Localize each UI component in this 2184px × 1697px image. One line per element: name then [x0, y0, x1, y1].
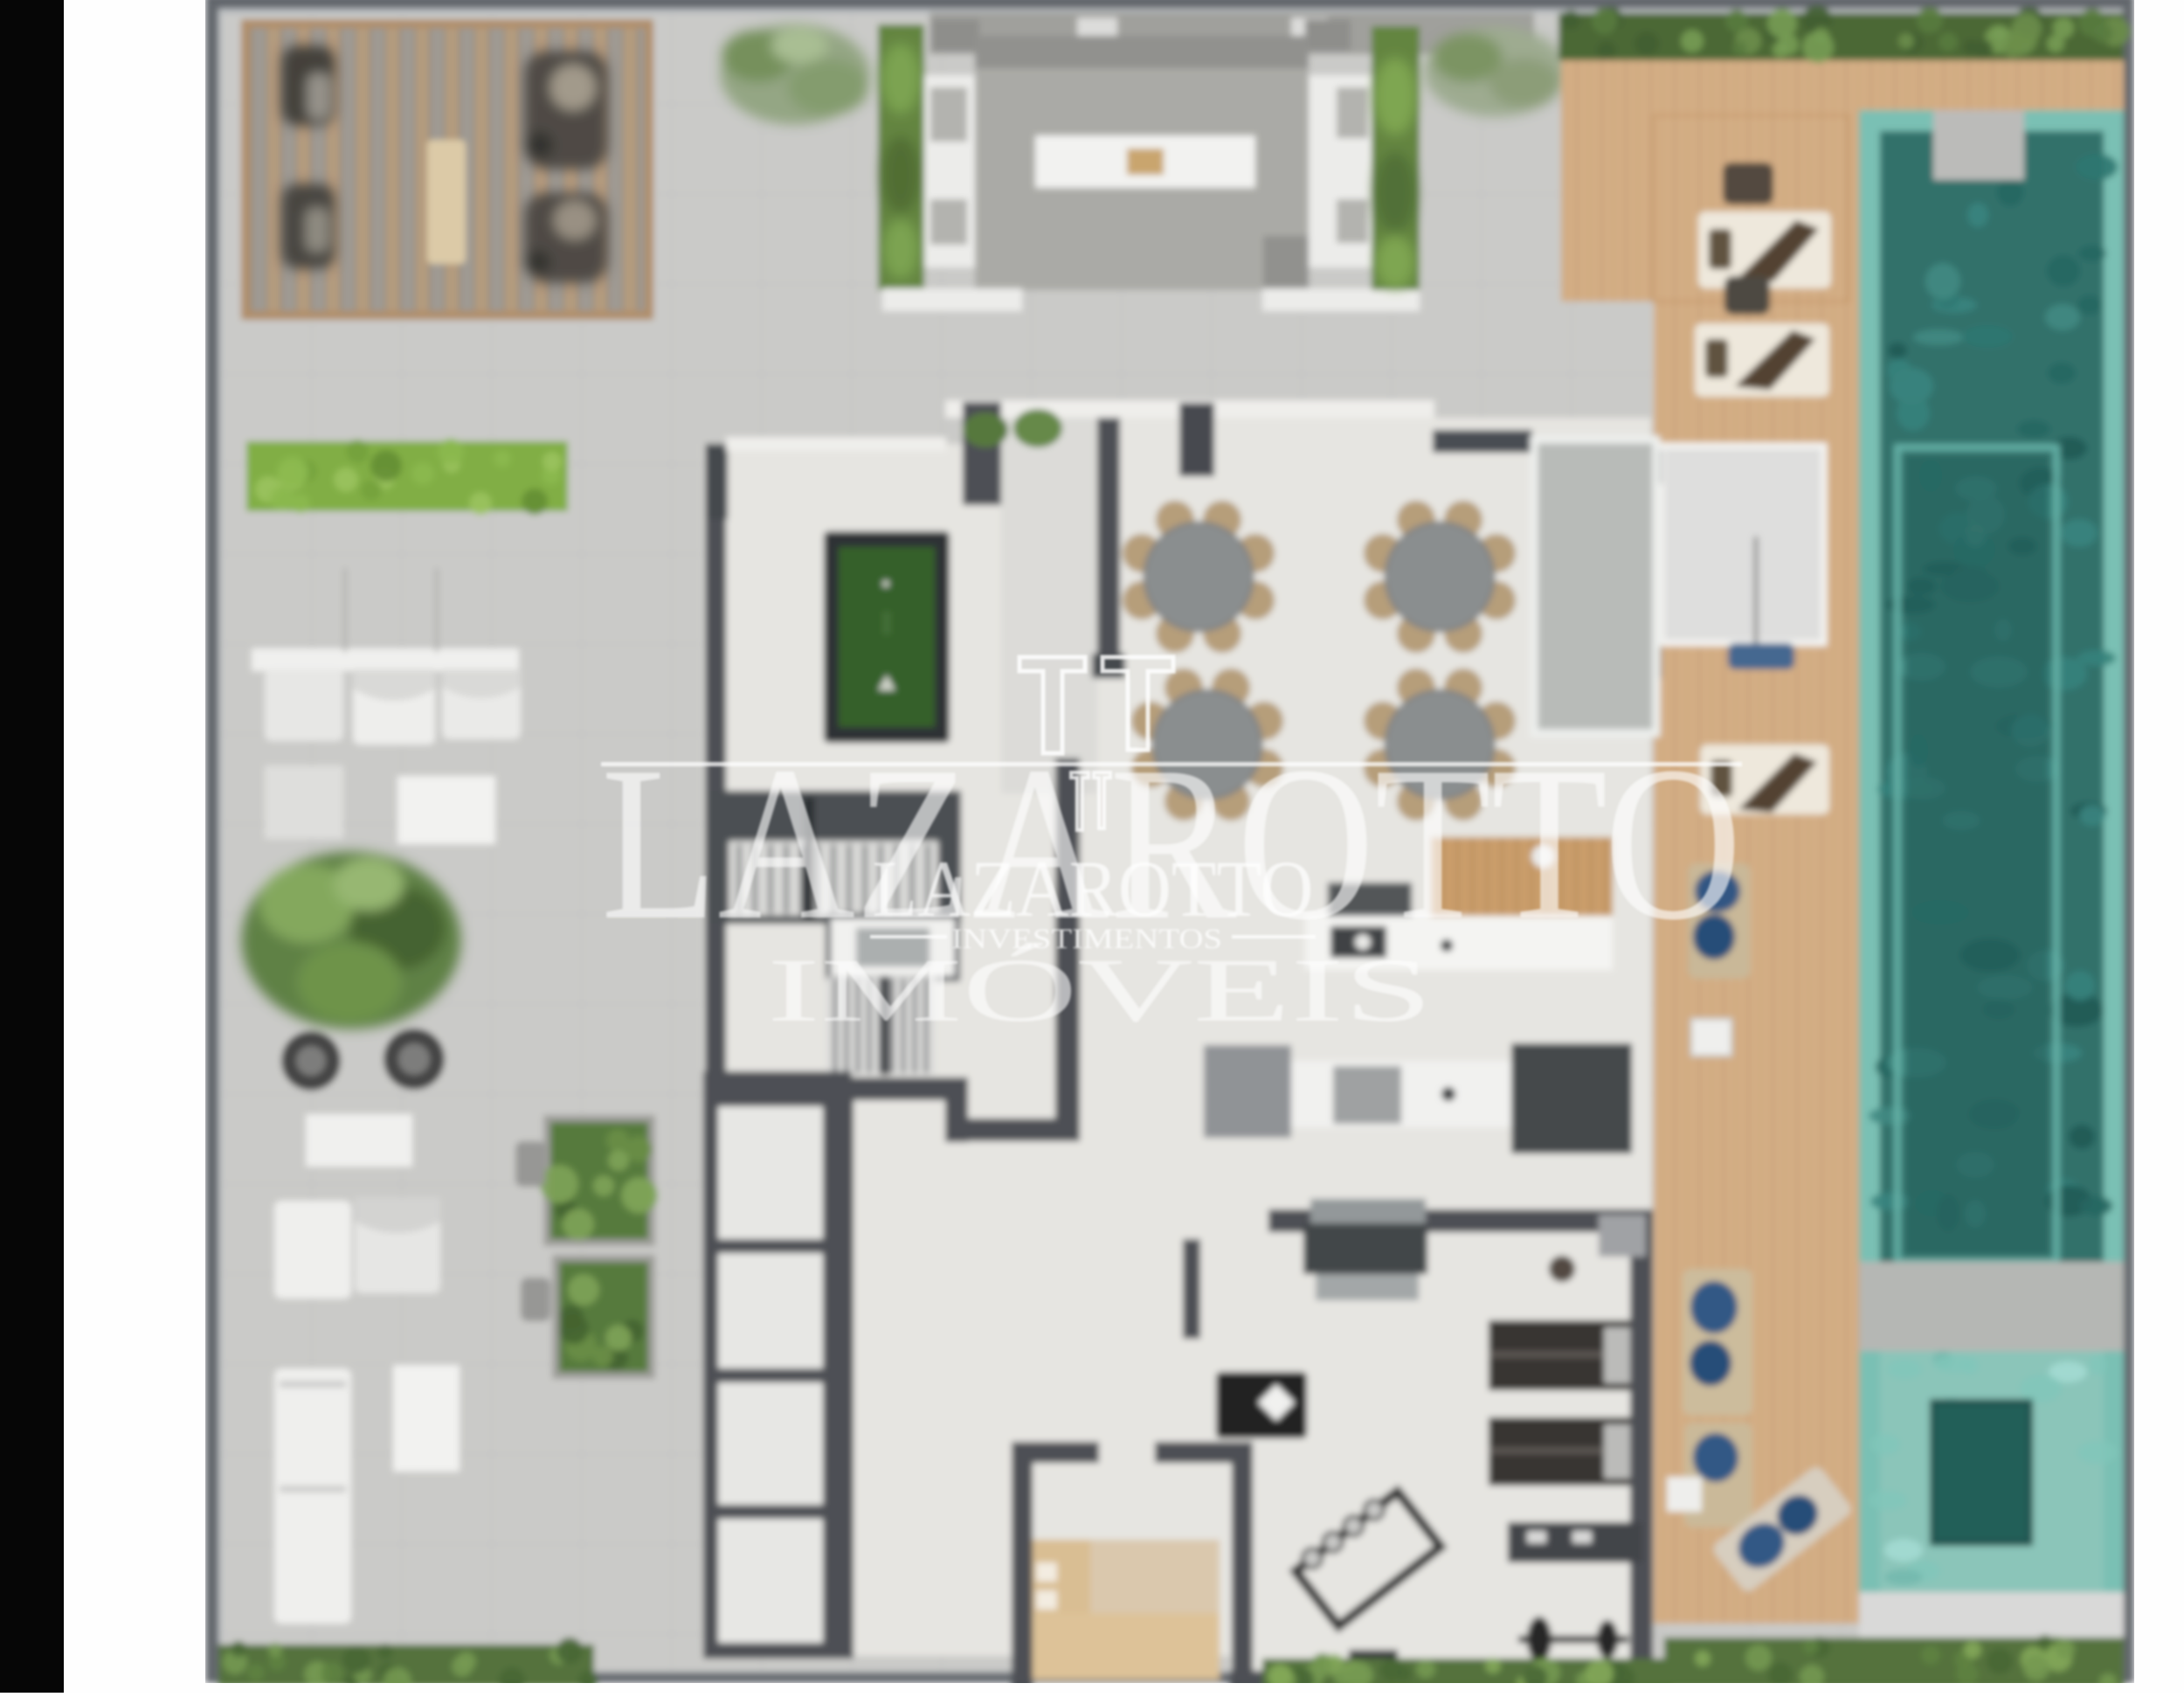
- svg-text:LAZAROTTO: LAZAROTTO: [873, 844, 1314, 933]
- svg-text:IMÓVEIS: IMÓVEIS: [767, 940, 1433, 1041]
